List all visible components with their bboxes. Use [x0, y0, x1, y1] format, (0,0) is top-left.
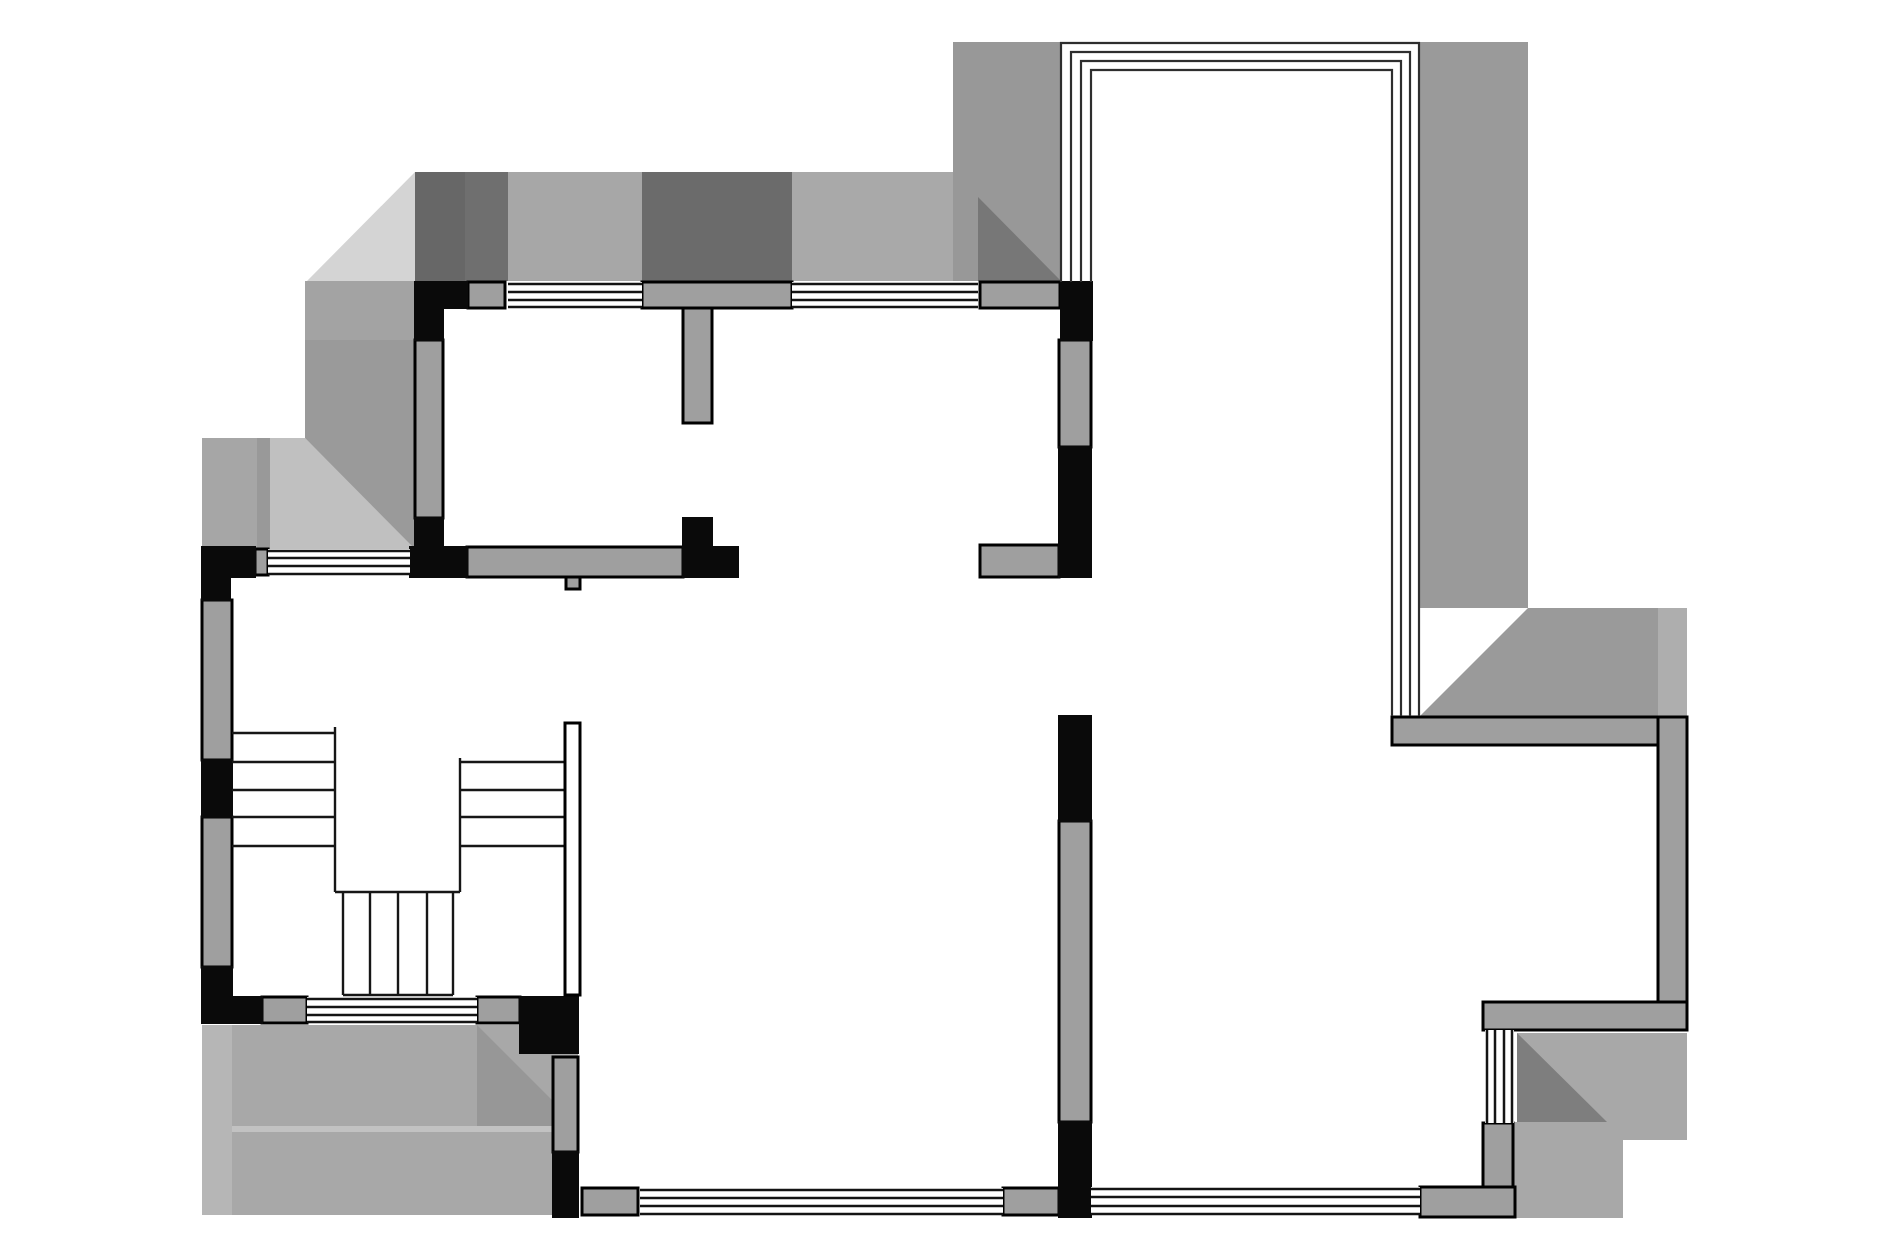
- shade-topright-band: [1420, 42, 1528, 608]
- wall-stairs-sill-a: [262, 997, 307, 1023]
- black-room1-corner-top-b: [415, 300, 443, 340]
- window-top-1-band: [508, 282, 642, 308]
- shade-top-mid-window1: [508, 172, 642, 281]
- black-top-tee-v: [683, 518, 712, 548]
- shade-bottomright-lower: [1513, 1122, 1623, 1218]
- wall-bottom-sill-b: [1003, 1188, 1059, 1215]
- black-mid-lower: [1059, 1122, 1091, 1217]
- wall-room1-left: [415, 340, 443, 518]
- wall-top-sill-right: [980, 282, 1060, 308]
- shade-bottomleft-seam: [232, 1126, 553, 1132]
- window-bottom-right-band: [1091, 1187, 1420, 1215]
- black-top-tee-h: [683, 547, 738, 577]
- black-left-corner-b: [202, 577, 230, 600]
- wall-mid-upper: [1059, 340, 1091, 447]
- shade-left-col-upper: [305, 281, 415, 340]
- shade-top-dark-a: [415, 172, 465, 281]
- shade-bottomleft-light-col: [202, 1025, 232, 1215]
- wall-bottomright-corner-h: [1420, 1187, 1515, 1217]
- black-left-bottom-b: [232, 997, 262, 1023]
- shade-top-dark-b: [465, 172, 508, 281]
- balcony-frame-outer: [1061, 43, 1419, 716]
- black-balcony-left: [1061, 282, 1092, 340]
- window-right-vertical-band: [1485, 1030, 1514, 1123]
- wall-room1-bottom: [467, 547, 683, 577]
- wall-balcony-bar: [1392, 717, 1660, 745]
- floor-plan-canvas: [0, 0, 1890, 1260]
- stair-rail: [565, 723, 580, 995]
- window-stairs-bottom-band: [307, 997, 477, 1023]
- black-stair-col: [553, 1152, 578, 1217]
- shade-topright-corner: [1420, 608, 1687, 716]
- shade-top-mid-window2: [792, 172, 978, 281]
- shade-left-band-b: [257, 438, 270, 549]
- wall-top-stub: [683, 308, 712, 423]
- shade-topright-seam: [1658, 608, 1687, 716]
- black-mid-upper: [1059, 447, 1091, 577]
- wall-stair-col: [553, 1057, 578, 1152]
- wall-notch: [566, 577, 580, 589]
- wall-top-mid: [642, 282, 792, 308]
- black-mid-mid: [1059, 716, 1091, 821]
- shade-top-dark-c: [642, 172, 792, 281]
- black-room1-left-lower: [415, 518, 443, 550]
- wall-stairs-sill-b: [477, 997, 520, 1023]
- floor-plan-page: [0, 0, 1890, 1260]
- black-left-seg: [202, 760, 232, 817]
- wall-left-sill: [255, 549, 268, 575]
- balcony-frame-line3: [1081, 61, 1401, 716]
- wall-bottomright-corner-v: [1483, 1123, 1513, 1189]
- black-left-corner-a: [202, 547, 255, 577]
- balcony-frame-inner: [1091, 70, 1392, 716]
- wall-top-sill-left: [468, 282, 505, 308]
- black-room1-bottom: [410, 547, 467, 577]
- window-left-small-band: [268, 549, 410, 575]
- black-stairs-corner: [520, 997, 578, 1053]
- wall-left-lower: [202, 817, 232, 967]
- shade-topleft-light-triangle: [307, 172, 415, 281]
- balcony-frame-line2: [1071, 52, 1410, 716]
- wall-stub-right: [980, 545, 1059, 577]
- wall-right: [1658, 717, 1687, 1002]
- window-bottom-mid-band: [640, 1188, 1003, 1215]
- wall-bottomright-bar: [1483, 1002, 1687, 1030]
- window-top-2-band: [792, 282, 978, 308]
- shade-left-band-a: [202, 438, 257, 549]
- wall-left-upper: [202, 600, 232, 760]
- wall-bottom-sill-a: [582, 1188, 638, 1215]
- wall-mid-long: [1059, 821, 1091, 1122]
- black-left-bottom-a: [202, 967, 232, 1023]
